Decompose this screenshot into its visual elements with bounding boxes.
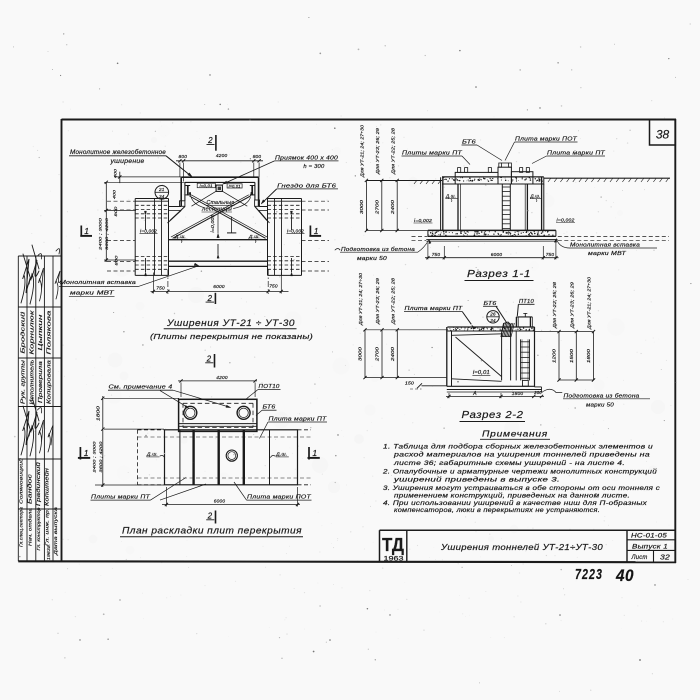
svg-text:Градинский: Градинский xyxy=(35,462,42,506)
svg-text:i=0,002: i=0,002 xyxy=(557,217,575,222)
svg-text:800: 800 xyxy=(113,206,118,217)
svg-text:Соляновицкий: Соляновицкий xyxy=(18,458,24,504)
svg-text:Гл. конструктор: Гл. конструктор xyxy=(36,507,42,550)
svg-text:i=0,01: i=0,01 xyxy=(229,183,241,188)
svg-text:Д.ш.: Д.ш. xyxy=(530,194,541,199)
svg-text:марки МВТ: марки МВТ xyxy=(70,290,115,296)
svg-text:Гл. инж. пр.: Гл. инж. пр. xyxy=(45,508,51,546)
svg-text:Бандос: Бандос xyxy=(27,473,33,504)
svg-text:уширение: уширение xyxy=(109,159,145,165)
svg-text:6000: 6000 xyxy=(214,499,226,505)
svg-text:34: 34 xyxy=(490,318,496,323)
svg-text:Уширения тоннелей УТ-21÷УТ-3: Уширения тоннелей УТ-21÷УТ-30 xyxy=(440,542,603,552)
svg-text:Копштейн: Копштейн xyxy=(44,468,51,506)
svg-text:2: 2 xyxy=(206,294,212,303)
svg-text:i=0,002: i=0,002 xyxy=(414,218,432,223)
svg-text:1500: 1500 xyxy=(569,348,574,363)
svg-text:4200: 4200 xyxy=(216,153,228,159)
svg-text:Для УТ-23; 26; 29: Для УТ-23; 26; 29 xyxy=(375,127,380,175)
svg-text:2700: 2700 xyxy=(374,199,379,215)
svg-text:Д.ш.: Д.ш. xyxy=(275,452,287,457)
svg-text:Для УТ-22; 25; 28: Для УТ-22; 25; 28 xyxy=(390,277,395,325)
svg-text:Бродский: Бродский xyxy=(20,311,27,353)
svg-text:2: 2 xyxy=(207,512,213,521)
svg-text:уширений приведены в выпуск: уширений приведены в выпуске 3. xyxy=(392,477,560,484)
svg-text:Проверила: Проверила xyxy=(38,361,44,403)
svg-text:400: 400 xyxy=(111,189,116,199)
svg-text:2700: 2700 xyxy=(375,346,380,362)
svg-text:Лист: Лист xyxy=(631,555,648,561)
svg-text:4200: 4200 xyxy=(216,375,228,381)
svg-text:750: 750 xyxy=(156,285,165,291)
svg-text:3000: 3000 xyxy=(358,346,363,361)
svg-text:марки МВТ: марки МВТ xyxy=(588,251,627,257)
svg-text:Д.ш.: Д.ш. xyxy=(174,234,186,239)
svg-text:марки 50: марки 50 xyxy=(586,402,614,408)
svg-text:2400: 2400 xyxy=(390,346,395,362)
svg-text:3000: 3000 xyxy=(359,199,364,214)
svg-text:400: 400 xyxy=(113,168,118,178)
svg-text:Д.ш.: Д.ш. xyxy=(248,234,260,239)
svg-text:26: 26 xyxy=(489,312,496,317)
svg-text:Монолитная вставка: Монолитная вставка xyxy=(570,243,640,249)
svg-text:7223: 7223 xyxy=(575,566,603,583)
svg-text:Д.ш.: Д.ш. xyxy=(146,452,158,457)
svg-text:1800: 1800 xyxy=(512,391,524,397)
svg-text:Дата выпуска: Дата выпуска xyxy=(53,507,59,557)
svg-text:Приямок 400 х 400: Приямок 400 х 400 xyxy=(275,155,338,161)
svg-text:750: 750 xyxy=(269,284,278,290)
svg-text:Монолитное железобетонное: Монолитное железобетонное xyxy=(70,150,166,156)
svg-text:21: 21 xyxy=(158,187,165,192)
svg-text:1: 1 xyxy=(84,448,89,458)
svg-text:ТД: ТД xyxy=(382,535,404,555)
svg-text:листе 36; габаритные схемы: листе 36; габаритные схемы уширений - на… xyxy=(393,460,625,467)
svg-text:Д.ш.: Д.ш. xyxy=(445,194,456,199)
svg-text:6000: 6000 xyxy=(491,252,503,258)
svg-text:Цыпкин: Цыпкин xyxy=(38,314,44,350)
svg-text:3. Уширения могут устраивать: 3. Уширения могут устраиваться в обе сто… xyxy=(383,486,660,492)
svg-text:Уширения УТ-21 ÷ УТ-30: Уширения УТ-21 ÷ УТ-30 xyxy=(166,318,295,329)
svg-text:6000: 6000 xyxy=(213,284,225,290)
svg-text:Копировала: Копировала xyxy=(47,360,53,404)
svg-text:Гл.спец.сектора: Гл.спец.сектора xyxy=(19,506,24,547)
svg-text:2: 2 xyxy=(207,136,213,145)
svg-text:3600 ; 4200: 3600 ; 4200 xyxy=(104,217,109,250)
svg-text:расход материалов на уширен: расход материалов на уширения тоннелей п… xyxy=(393,452,651,459)
svg-text:1200: 1200 xyxy=(552,348,557,363)
svg-text:Подготовка из бетона: Подготовка из бетона xyxy=(564,393,640,399)
svg-text:Полякова: Полякова xyxy=(47,310,53,354)
svg-text:2400 ; 3000: 2400 ; 3000 xyxy=(97,217,102,251)
svg-text:38: 38 xyxy=(656,128,670,142)
svg-text:Для УТ-21; 24; 27÷30: Для УТ-21; 24; 27÷30 xyxy=(360,124,365,178)
svg-text:1800: 1800 xyxy=(96,405,101,421)
svg-text:2: 2 xyxy=(206,355,212,364)
svg-text:Для УТ-23; 26; 29: Для УТ-23; 26; 29 xyxy=(375,277,380,325)
svg-text:(Плиты перекрытия не показа: (Плиты перекрытия не показаны) xyxy=(150,332,313,341)
svg-text:1963: 1963 xyxy=(384,556,404,563)
svg-text:h = 300: h = 300 xyxy=(303,164,324,170)
svg-text:800: 800 xyxy=(178,154,187,160)
svg-text:Монолитная вставка: Монолитная вставка xyxy=(60,280,136,286)
svg-text:1: 1 xyxy=(314,226,319,236)
svg-text:2400: 2400 xyxy=(390,199,395,215)
svg-text:1963г.: 1963г. xyxy=(46,544,52,560)
svg-text:1: 1 xyxy=(84,226,89,236)
svg-text:i=0,001: i=0,001 xyxy=(210,214,215,233)
svg-text:200: 200 xyxy=(533,390,542,395)
svg-text:i=0,01: i=0,01 xyxy=(200,183,213,188)
svg-text:компенсаторов, люки в перек: компенсаторов, люки в перекрытиях не уст… xyxy=(394,508,600,514)
svg-text:Для УТ-22; 25; 28: Для УТ-22; 25; 28 xyxy=(390,127,395,175)
svg-text:Разрез 1-1: Разрез 1-1 xyxy=(467,269,531,280)
svg-text:Для УТ-22; 25; 28: Для УТ-22; 25; 28 xyxy=(552,281,557,329)
svg-text:План раскладки плит перекры: План раскладки плит перекрытия xyxy=(122,526,302,536)
svg-text:800: 800 xyxy=(253,154,262,160)
svg-text:А: А xyxy=(472,391,477,397)
svg-text:750: 750 xyxy=(432,252,441,258)
svg-text:1800: 1800 xyxy=(586,348,591,363)
svg-text:40: 40 xyxy=(615,567,634,585)
svg-text:Гнездо для БТ6: Гнездо для БТ6 xyxy=(277,183,336,189)
svg-text:Для УТ-21; 24; 27÷30: Для УТ-21; 24; 27÷30 xyxy=(587,276,592,330)
svg-text:1. Таблица для подбора сбор: 1. Таблица для подбора сборных железобет… xyxy=(383,444,654,450)
svg-text:2400 ; 3000: 2400 ; 3000 xyxy=(92,441,97,474)
svg-text:4. При использовании уширени: 4. При использовании уширений в качестве… xyxy=(383,500,648,507)
svg-text:Разрез 2-2: Разрез 2-2 xyxy=(462,410,524,421)
svg-text:Рук. группы: Рук. группы xyxy=(21,360,27,404)
svg-text:Для УТ-23; 26; 29: Для УТ-23; 26; 29 xyxy=(569,281,574,329)
svg-text:применением конструкций, прив: применением конструкций, приведеных на д… xyxy=(394,493,630,500)
svg-text:3600 ; 4200: 3600 ; 4200 xyxy=(98,441,103,473)
svg-text:Для УТ-21; 24; 27÷30: Для УТ-21; 24; 27÷30 xyxy=(358,272,363,326)
svg-text:Нач. отдела: Нач. отдела xyxy=(27,508,33,546)
svg-text:750: 750 xyxy=(546,252,555,258)
svg-text:1: 1 xyxy=(312,448,317,458)
svg-text:150: 150 xyxy=(405,381,415,386)
svg-text:Корнилюк: Корнилюк xyxy=(29,310,35,355)
